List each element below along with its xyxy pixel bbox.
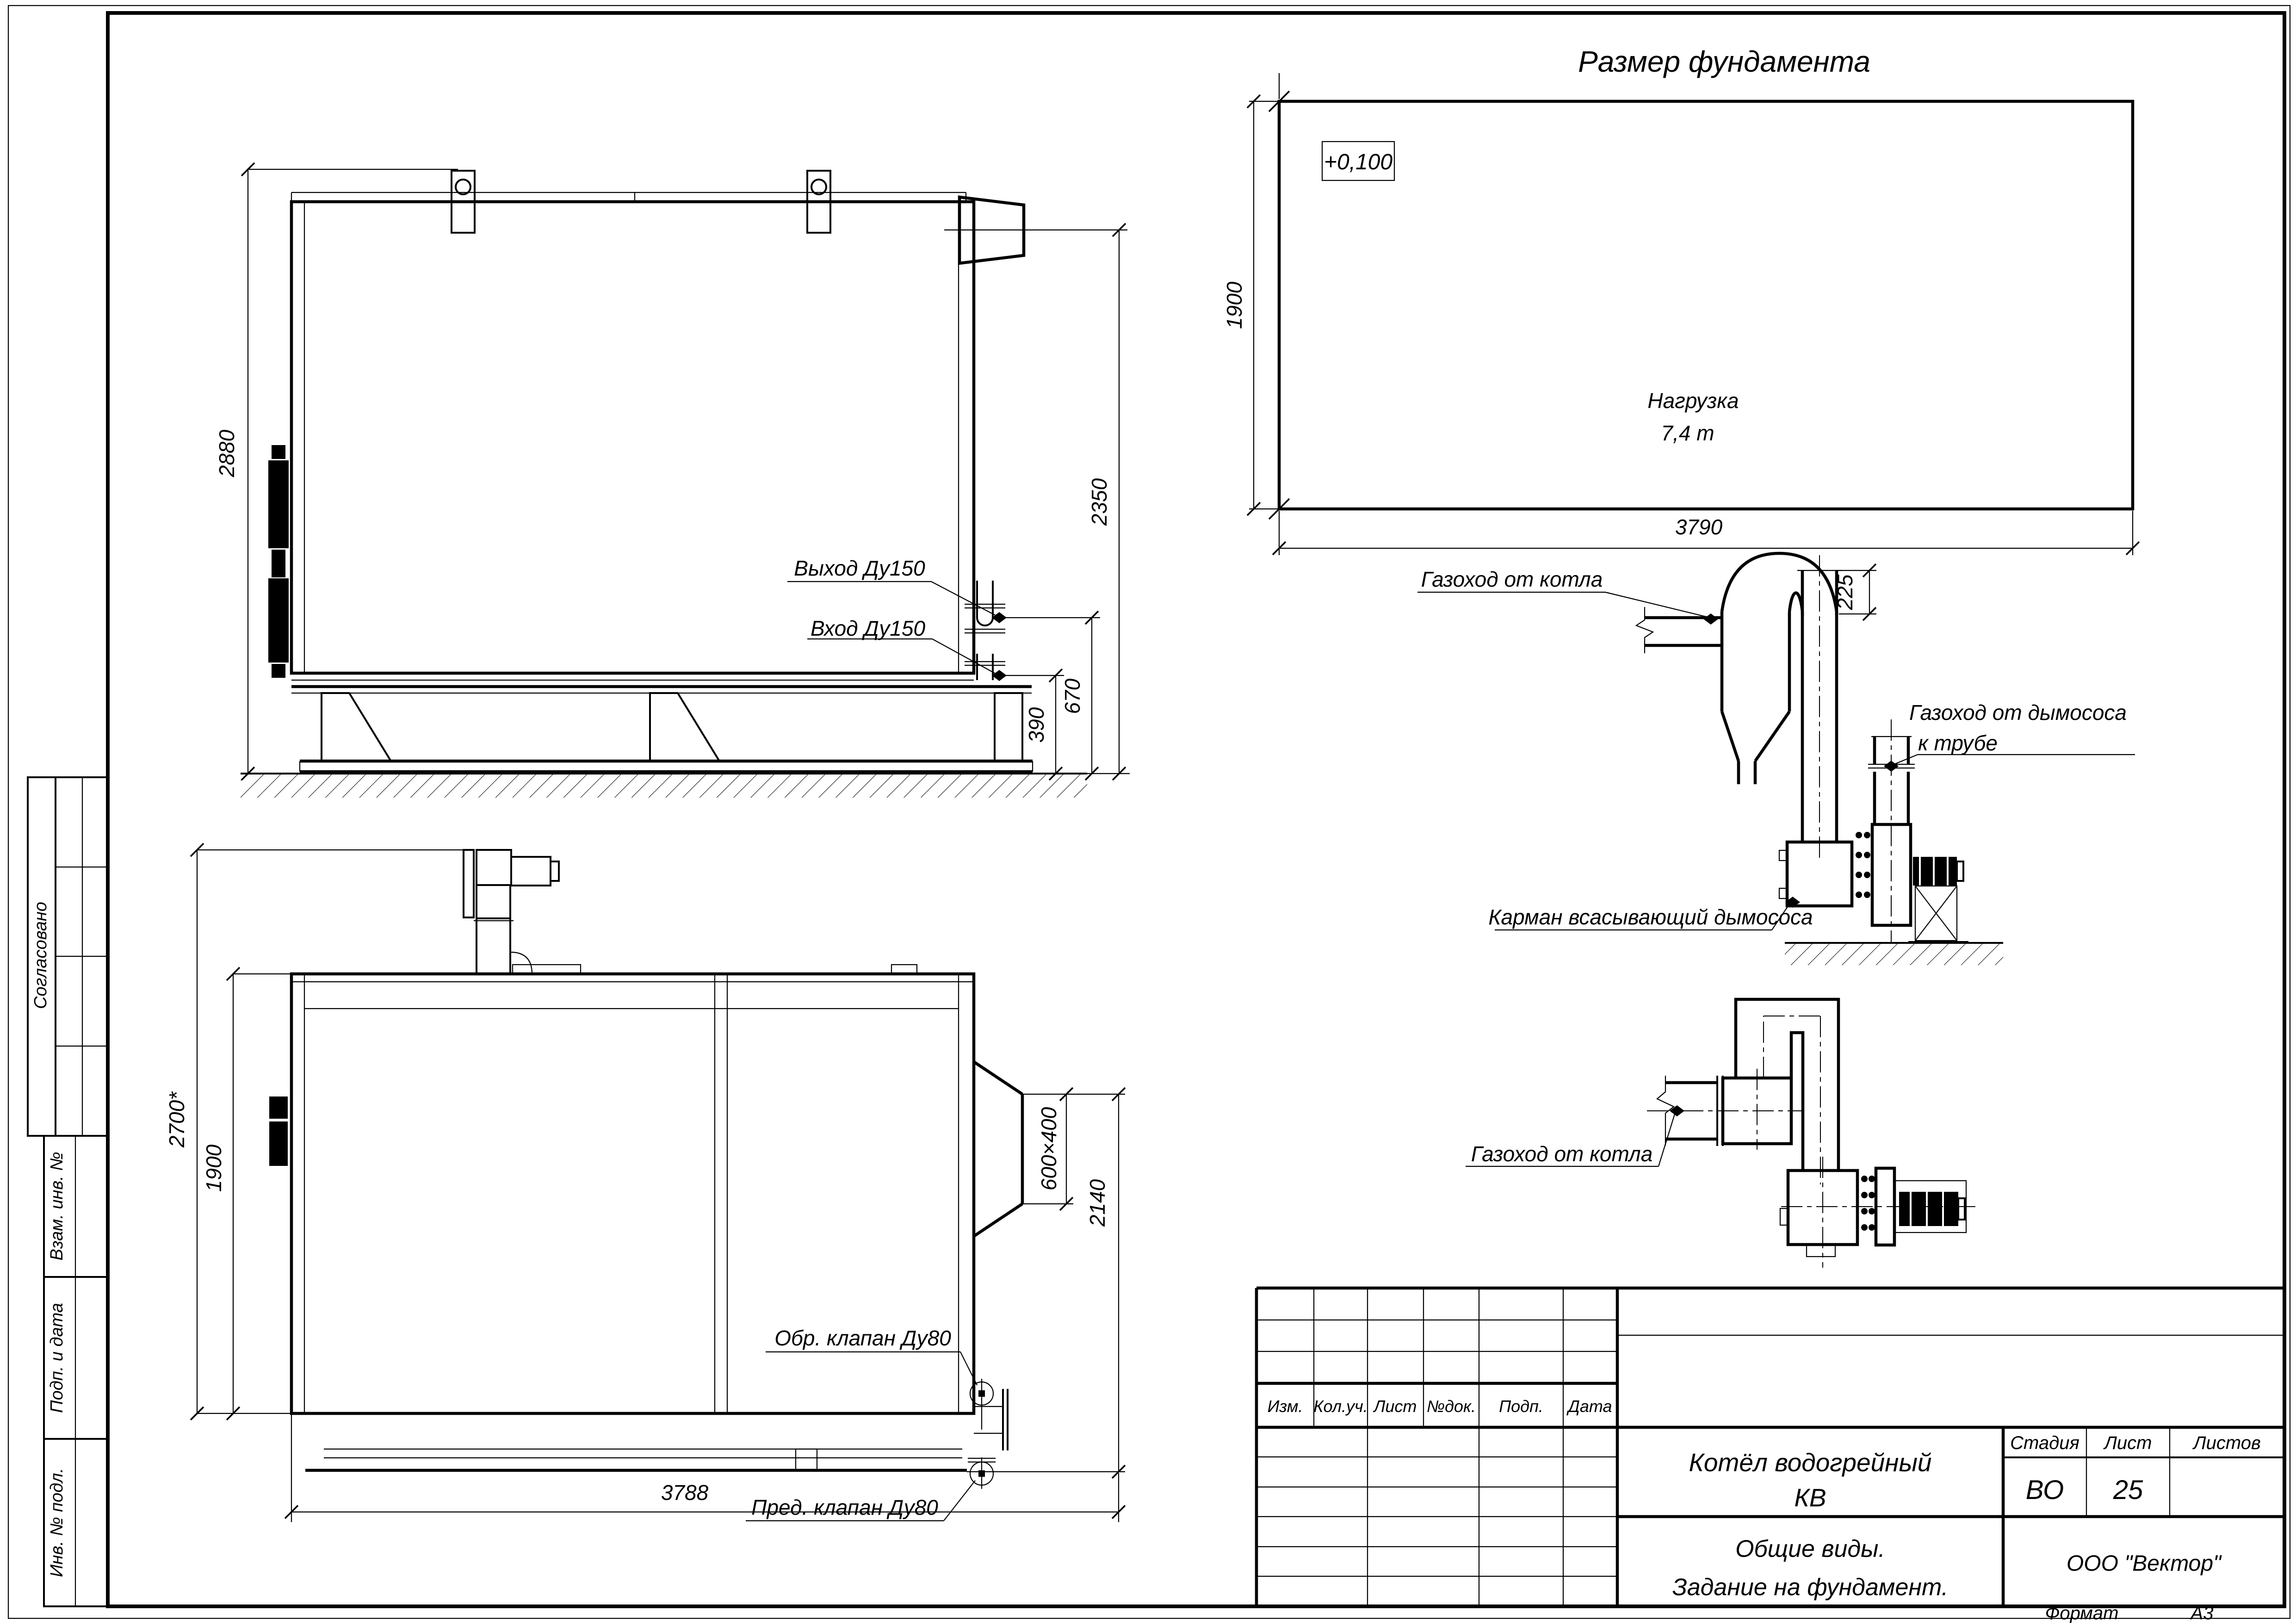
drawing-sheet: Согласовано Взам. инв. № Подп. и дата Ин… — [0, 0, 2296, 1623]
format-label: Формат — [2045, 1603, 2119, 1623]
foundation-title: Размер фундамента — [1578, 45, 1870, 78]
stage-value: ВО — [2026, 1475, 2064, 1505]
company-name: ООО "Вектор" — [2067, 1551, 2222, 1576]
rev-data: Дата — [1566, 1397, 1612, 1416]
sidebar-label-inv: Инв. № подл. — [47, 1468, 67, 1577]
svg-text:2140: 2140 — [1085, 1179, 1109, 1227]
dim-3790: 3790 — [1273, 511, 2139, 555]
sheet-title-line2: Задание на фундамент. — [1672, 1574, 1948, 1601]
sidebar-label-vzam: Взам. инв. № — [47, 1152, 67, 1260]
dim-2700: 2700* — [165, 843, 464, 1420]
gas-duct-elevation: Газоход от котла — [1417, 553, 2135, 965]
ground-line-2 — [1785, 943, 2003, 965]
svg-text:390: 390 — [1024, 707, 1048, 743]
svg-text:Газоход от котла: Газоход от котла — [1471, 1142, 1653, 1166]
rev-koluch: Кол.уч. — [1313, 1397, 1368, 1416]
gas-duct-plan: Газоход от котла — [1466, 999, 1975, 1268]
dim-1900-foundation: 1900 — [1222, 95, 1260, 515]
svg-text:2350: 2350 — [1087, 478, 1111, 526]
doc-title-line1: Котёл водогрейный — [1689, 1448, 1932, 1477]
sidebar-label-podp: Подп. и дата — [47, 1303, 67, 1413]
support-frame — [291, 687, 1033, 772]
svg-text:225: 225 — [1833, 574, 1857, 610]
sheet-title-line1: Общие виды. — [1735, 1536, 1885, 1562]
boiler-side-view: 2880 2350 670 390 Выход Ду150 — [215, 163, 1130, 798]
label-from-boiler-1: Газоход от котла — [1417, 567, 1718, 625]
sheet-frame — [8, 6, 2290, 1618]
svg-text:1900: 1900 — [202, 1144, 226, 1192]
dim-3788: 3788 — [285, 1415, 1125, 1522]
rev-podp: Подп. — [1499, 1397, 1543, 1416]
svg-text:600×400: 600×400 — [1037, 1107, 1061, 1190]
sheet-label: Лист — [2103, 1433, 2152, 1453]
label-pocket: Карман всасывающий дымососа — [1488, 897, 1813, 930]
dim-2350: 2350 — [1087, 223, 1126, 780]
rev-list: Лист — [1373, 1397, 1417, 1416]
sidebar-stamps: Согласовано Взам. инв. № Подп. и дата Ин… — [28, 777, 108, 1606]
svg-text:Пред. клапан Ду80: Пред. клапан Ду80 — [751, 1495, 938, 1519]
label-check-valve: Обр. клапан Ду80 — [766, 1326, 977, 1385]
svg-text:Газоход от дымососа: Газоход от дымососа — [1909, 700, 2127, 725]
load-value: 7,4 т — [1661, 421, 1714, 445]
stage-label: Стадия — [2010, 1433, 2079, 1453]
duct-transition — [974, 1062, 1022, 1236]
ground-line — [241, 774, 1087, 798]
foundation-plan: Размер фундамента +0,100 Нагрузка 7,4 т … — [1222, 45, 2139, 555]
title-block: Изм. Кол.уч. Лист №док. Подп. Дата Котёл… — [1256, 1288, 2284, 1606]
dim-1900-plan: 1900 — [197, 967, 292, 1420]
exhauster-plan — [1780, 1157, 1975, 1268]
boiler-plan-view: Обр. клапан Ду80 Пред. клапан Ду80 2700*… — [165, 843, 1125, 1522]
svg-text:Обр. клапан Ду80: Обр. клапан Ду80 — [774, 1326, 951, 1350]
svg-text:Карман всасывающий дымососа: Карман всасывающий дымососа — [1488, 905, 1813, 929]
label-safety-valve: Пред. клапан Ду80 — [746, 1481, 975, 1521]
svg-text:2880: 2880 — [215, 429, 239, 477]
svg-text:Выход Ду150: Выход Ду150 — [794, 556, 925, 580]
dim-225: 225 — [1833, 564, 1876, 620]
rev-izm: Изм. — [1268, 1397, 1303, 1416]
svg-text:3790: 3790 — [1675, 515, 1723, 539]
svg-text:Газоход от котла: Газоход от котла — [1421, 567, 1603, 591]
exhauster-side — [464, 850, 581, 974]
sheets-label: Листов — [2192, 1433, 2261, 1453]
svg-text:2700*: 2700* — [165, 1091, 189, 1148]
dim-600x400: 600×400 — [1022, 1088, 1073, 1210]
base-rails — [305, 1449, 967, 1470]
svg-text:Вход Ду150: Вход Ду150 — [811, 616, 925, 640]
elevation-mark: +0,100 — [1322, 142, 1394, 180]
svg-text:+0,100: +0,100 — [1324, 150, 1392, 174]
label-to-stack: Газоход от дымососа к трубе — [1884, 700, 2135, 772]
dim-670: 670 — [993, 611, 1100, 780]
flue-outlet — [944, 197, 1127, 263]
svg-text:3788: 3788 — [661, 1481, 709, 1505]
sheet-value: 25 — [2113, 1475, 2143, 1505]
format-value: А3 — [2190, 1603, 2214, 1623]
svg-text:670: 670 — [1060, 678, 1084, 714]
doc-title-line2: КВ — [1794, 1483, 1826, 1512]
outlet-nozzle — [965, 581, 1005, 633]
label-from-boiler-2: Газоход от котла — [1466, 1105, 1684, 1166]
rev-ndok: №док. — [1427, 1397, 1476, 1416]
svg-text:1900: 1900 — [1222, 281, 1246, 329]
sidebar-label-agreed: Согласовано — [31, 902, 50, 1009]
door-hinges — [268, 445, 289, 678]
svg-text:к трубе: к трубе — [1918, 731, 1998, 755]
load-label: Нагрузка — [1647, 389, 1739, 413]
